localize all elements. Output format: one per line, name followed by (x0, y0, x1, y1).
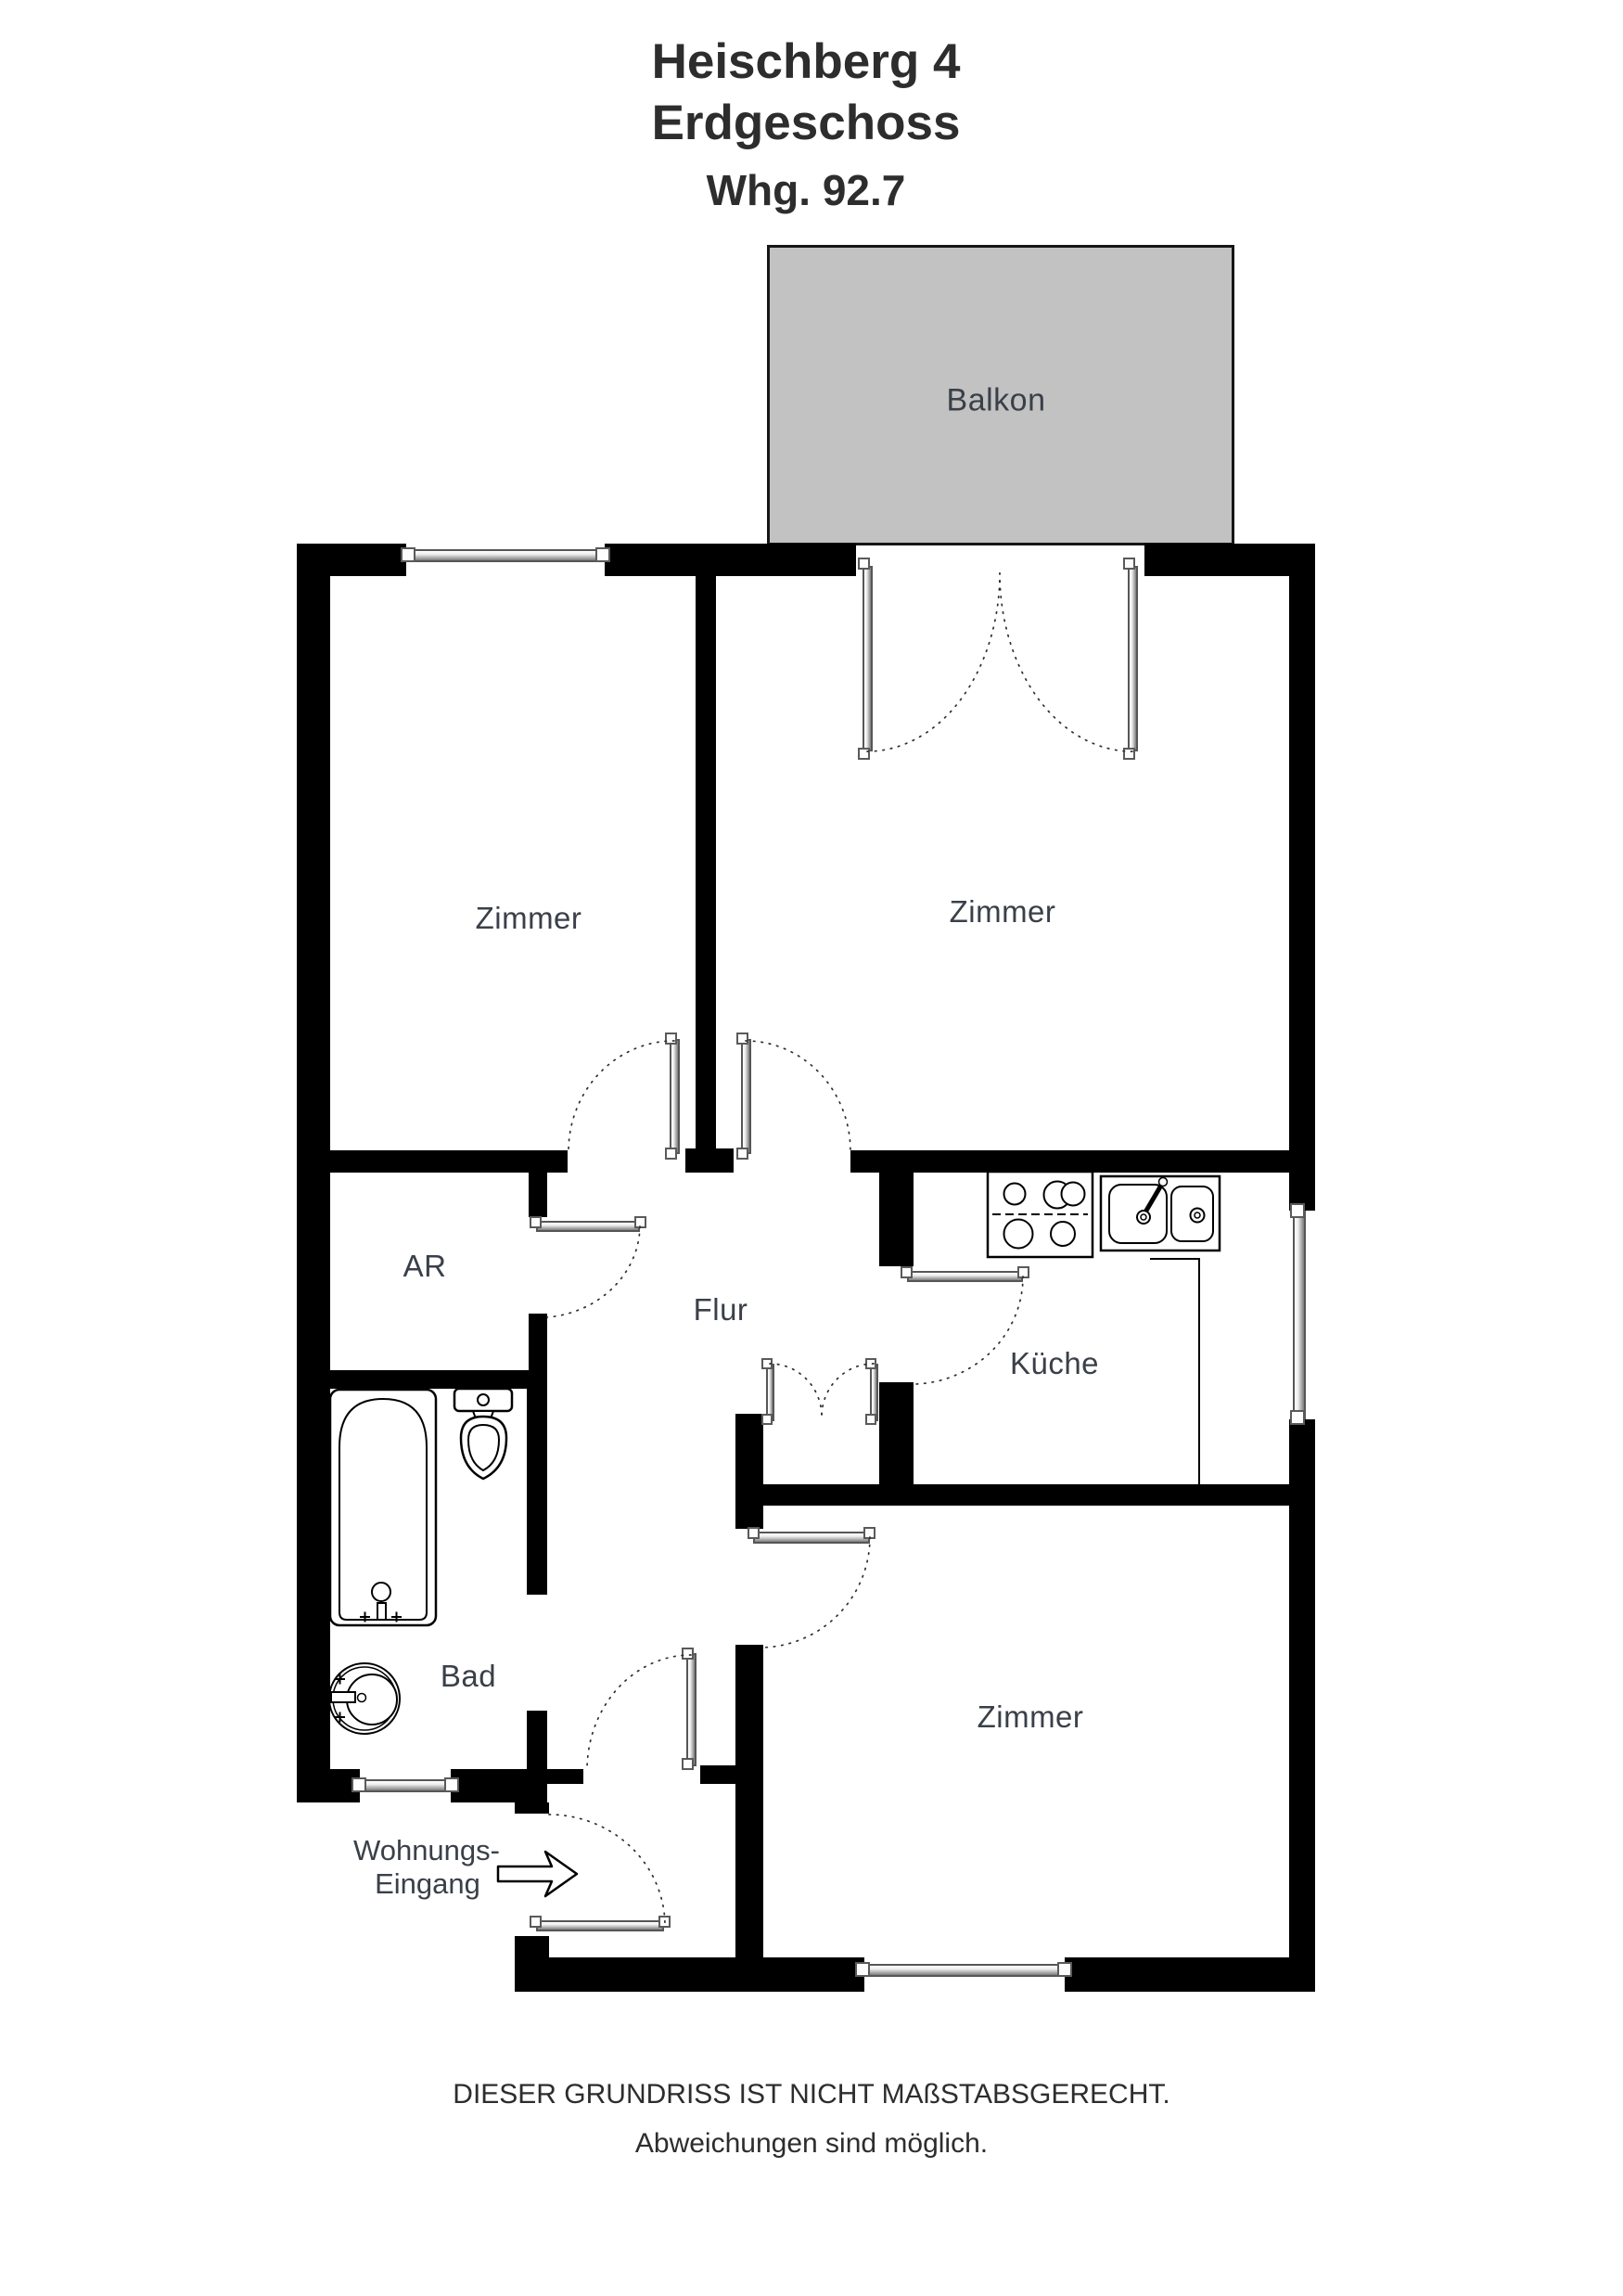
label-entrance-line2: Eingang (375, 1867, 480, 1901)
label-bathroom: Bad (441, 1659, 496, 1694)
floor-plan: Heischberg 4 Erdgeschoss Whg. 92.7 (0, 0, 1623, 2296)
label-bedroom-bottom: Zimmer (978, 1700, 1084, 1735)
footer-disclaimer-line2: Abweichungen sind möglich. (635, 2128, 988, 2160)
footer-disclaimer-line1: DIESER GRUNDRISS IST NICHT MAßSTABSGEREC… (453, 2079, 1169, 2110)
kitchen-counter-line (1150, 1259, 1199, 1484)
entrance-arrow-icon (498, 1852, 577, 1896)
label-balcony: Balkon (947, 383, 1046, 419)
toilet (454, 1389, 512, 1479)
bathtub (330, 1390, 436, 1625)
label-bedroom-top-right: Zimmer (950, 894, 1056, 930)
label-bedroom-top-left: Zimmer (476, 901, 582, 936)
washbasin (329, 1663, 400, 1734)
stove (988, 1172, 1093, 1257)
plan-annotations (0, 0, 1623, 2296)
label-hallway: Flur (694, 1292, 748, 1328)
kitchen-sink (1101, 1176, 1220, 1251)
label-entrance-line1: Wohnungs- (353, 1834, 500, 1867)
label-kitchen: Küche (1010, 1346, 1099, 1381)
label-storage-room: AR (403, 1249, 447, 1284)
